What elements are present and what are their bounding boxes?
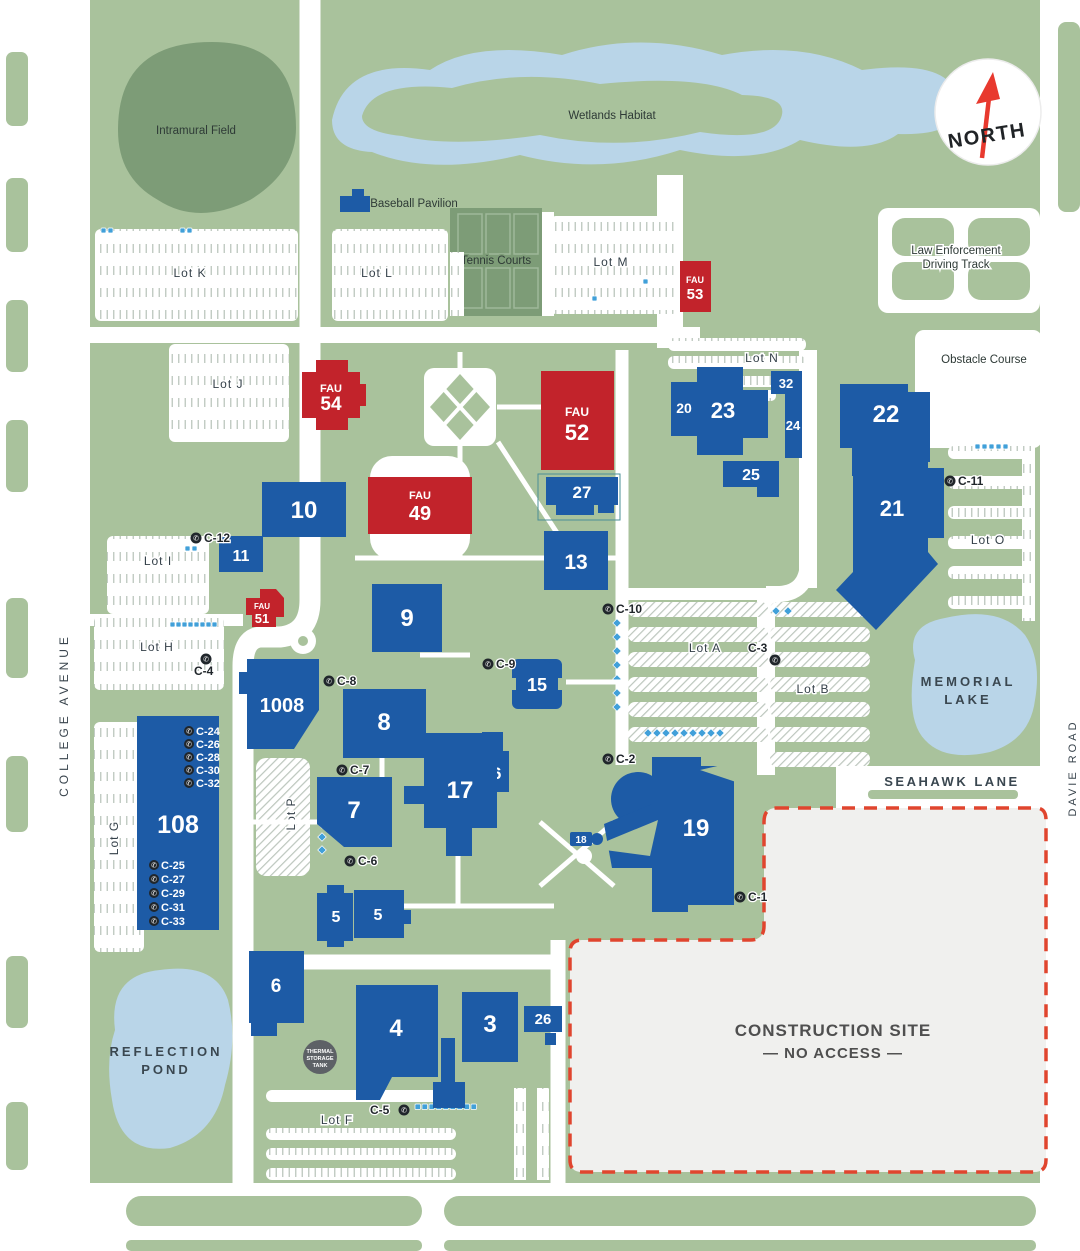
- building-7-number: 7: [347, 797, 360, 824]
- svg-text:✆: ✆: [203, 656, 209, 664]
- building-4-number: 4: [389, 1015, 403, 1042]
- law-enforcement-label-1: Law Enforcement: [911, 245, 1001, 257]
- building-13-number: 13: [564, 551, 587, 574]
- callbox-c11: ✆ C-11: [945, 474, 984, 488]
- wetlands-label: Wetlands Habitat: [568, 110, 656, 122]
- callbox-c8: ✆ C-8: [324, 674, 357, 688]
- lot-h-label: Lot H: [140, 640, 174, 654]
- obstacle-course: Obstacle Course: [915, 330, 1042, 448]
- building-5-west-number: 5: [332, 909, 341, 926]
- svg-text:✆: ✆: [605, 606, 611, 614]
- fau52-prefix: FAU: [565, 405, 589, 419]
- building-24-number: 24: [786, 418, 801, 433]
- central-plaza: [424, 368, 496, 446]
- svg-text:✆: ✆: [193, 535, 199, 543]
- callbox-label: C-27: [161, 874, 185, 886]
- lot-p-label: Lot P: [284, 797, 298, 830]
- building-13: 13: [544, 531, 608, 590]
- callbox-label: C-1: [748, 890, 768, 904]
- lot-j: [169, 344, 289, 442]
- building-1008: 1008: [239, 659, 319, 749]
- callbox-label: C-25: [161, 860, 185, 872]
- building-10-number: 10: [291, 497, 318, 524]
- building-23-number: 23: [711, 398, 735, 423]
- callbox-label: C-29: [161, 888, 185, 900]
- svg-text:✆: ✆: [186, 767, 192, 775]
- accessible-parking-icon: [180, 228, 185, 233]
- construction-label-1: CONSTRUCTION SITE: [735, 1021, 931, 1040]
- building-fau52: FAU 52: [541, 371, 614, 470]
- obstacle-course-label: Obstacle Course: [941, 354, 1027, 366]
- accessible-parking-icon: [592, 296, 597, 301]
- callbox-label: C-10: [616, 602, 642, 616]
- callbox-label: C-33: [161, 916, 185, 928]
- campus-map: Wetlands Habitat Intramural Field Tennis…: [0, 0, 1080, 1251]
- accessible-parking-icon: [101, 228, 106, 233]
- college-avenue-medians: [6, 52, 28, 1170]
- callbox-label: C-3: [748, 641, 768, 655]
- callbox-c12: ✆ C-12: [191, 531, 231, 545]
- accessible-parking-icon: [643, 279, 648, 284]
- building-26: 26: [524, 1006, 562, 1032]
- lot-o-accessible-row: [975, 444, 1008, 449]
- callbox-label: C-12: [204, 531, 230, 545]
- building-9: 9: [372, 584, 442, 652]
- building-25-number: 25: [742, 467, 760, 484]
- callbox-label: C-32: [196, 778, 220, 790]
- building-32: 32: [771, 371, 802, 394]
- lot-a-accessible-row: [644, 729, 724, 737]
- callbox-label: C-8: [337, 674, 357, 688]
- building-15: 15: [508, 659, 566, 709]
- memorial-lake-label-2: LAKE: [944, 692, 991, 707]
- thermal-tank-label-3: TANK: [313, 1063, 328, 1069]
- svg-text:✆: ✆: [186, 728, 192, 736]
- north-compass: NORTH: [935, 59, 1041, 165]
- svg-text:✆: ✆: [151, 890, 157, 898]
- lot-p: [256, 758, 310, 876]
- callbox-c1: ✆ C-1: [735, 890, 768, 904]
- lot-k-label: Lot K: [173, 266, 206, 280]
- svg-text:✆: ✆: [485, 661, 491, 669]
- lot-i-label: Lot I: [144, 554, 172, 568]
- campus-map-canvas: Wetlands Habitat Intramural Field Tennis…: [0, 0, 1080, 1251]
- lot-b-label: Lot B: [796, 682, 829, 696]
- college-avenue-road: [28, 0, 90, 1251]
- south-road-medians: [126, 1196, 1036, 1251]
- building-17-number: 17: [447, 777, 474, 804]
- fau53-number: 53: [687, 286, 704, 303]
- accessible-parking-icon: [185, 546, 190, 551]
- intramural-field-label: Intramural Field: [156, 125, 236, 137]
- building-22-number: 22: [873, 401, 900, 428]
- building-32-number: 32: [779, 376, 793, 391]
- svg-text:✆: ✆: [347, 858, 353, 866]
- svg-text:✆: ✆: [401, 1107, 407, 1115]
- building-3-number: 3: [483, 1011, 496, 1038]
- building-19-number: 19: [683, 815, 710, 842]
- callbox-c10: ✆ C-10: [603, 602, 643, 616]
- svg-text:✆: ✆: [186, 754, 192, 762]
- svg-text:✆: ✆: [151, 918, 157, 926]
- lot-f-label: Lot F: [321, 1113, 353, 1127]
- fau54-number: 54: [320, 394, 342, 415]
- svg-text:✆: ✆: [151, 876, 157, 884]
- callbox-stack-top: ✆ C-24 ✆ C-26 ✆ C-28 ✆ C-30 ✆ C-32: [184, 726, 221, 790]
- building-5-west: 5: [317, 885, 353, 947]
- lot-a-label: Lot A: [689, 641, 721, 655]
- building-20-number: 20: [676, 400, 692, 416]
- callbox-label: C-30: [196, 765, 220, 777]
- svg-text:✆: ✆: [326, 678, 332, 686]
- building-5-east: 5: [354, 890, 411, 938]
- fau51-prefix: FAU: [254, 602, 270, 611]
- callbox-label: C-5: [370, 1103, 390, 1117]
- callbox-label: C-28: [196, 752, 220, 764]
- tennis-courts-label: Tennis Courts: [461, 255, 532, 267]
- building-24: 24: [785, 394, 802, 458]
- callbox-c2: ✆ C-2: [603, 752, 636, 766]
- building-10: 10: [262, 482, 346, 537]
- building-fau53: FAU 53: [680, 261, 711, 312]
- seahawk-lane-label: SEAHAWK LANE: [884, 774, 1019, 789]
- thermal-tank-label-2: STORAGE: [306, 1056, 333, 1062]
- fau49-prefix: FAU: [409, 490, 431, 502]
- svg-text:✆: ✆: [151, 862, 157, 870]
- callbox-label: C-7: [350, 763, 370, 777]
- callbox-label: C-31: [161, 902, 185, 914]
- building-26-number: 26: [535, 1011, 552, 1028]
- college-avenue-label: COLLEGE AVENUE: [57, 633, 71, 797]
- callbox-label: C-26: [196, 739, 220, 751]
- svg-text:✆: ✆: [186, 741, 192, 749]
- thermal-storage-tank: THERMAL STORAGE TANK: [303, 1040, 337, 1074]
- law-enforcement-label-2: Driving Track: [922, 259, 989, 271]
- building-1008-number: 1008: [260, 695, 305, 717]
- building-27-number: 27: [573, 483, 592, 502]
- memorial-lake-label-1: MEMORIAL: [921, 674, 1016, 689]
- accessible-parking-icon: [108, 228, 113, 233]
- building-108-number: 108: [157, 811, 199, 839]
- callbox-label: C-24: [196, 726, 221, 738]
- building-5-east-number: 5: [374, 907, 383, 924]
- svg-text:✆: ✆: [947, 478, 953, 486]
- callbox-label: C-11: [958, 474, 984, 488]
- construction-label-2: — NO ACCESS —: [763, 1045, 903, 1062]
- fau52-number: 52: [565, 420, 589, 445]
- building-20: 20: [671, 382, 698, 436]
- callbox-label: C-4: [194, 664, 214, 678]
- lot-g-label: Lot G: [107, 821, 121, 855]
- callbox-c7: ✆ C-7: [337, 763, 370, 777]
- lot-n: [668, 338, 806, 351]
- building-8: 8: [343, 689, 426, 758]
- lot-m-label: Lot M: [593, 255, 628, 269]
- callbox-label: C-6: [358, 854, 378, 868]
- fau53-prefix: FAU: [686, 275, 704, 285]
- baseball-pavilion-label: Baseball Pavilion: [370, 198, 458, 210]
- building-15-number: 15: [527, 675, 547, 695]
- davie-road-label: DAVIE ROAD: [1067, 719, 1079, 816]
- reflection-pond-label-1: REFLECTION: [109, 1044, 222, 1059]
- memorial-lake: MEMORIAL LAKE: [912, 614, 1037, 755]
- building-fau49: FAU 49: [368, 456, 472, 560]
- accessible-parking-icon: [192, 546, 197, 551]
- building-21-number: 21: [880, 496, 904, 521]
- svg-text:✆: ✆: [772, 657, 778, 665]
- lot-n-label: Lot N: [745, 351, 779, 365]
- lot-l-label: Lot L: [361, 266, 393, 280]
- callbox-label: C-9: [496, 657, 516, 671]
- law-enforcement-driving-track: Law Enforcement Driving Track: [878, 208, 1040, 313]
- building-18-number: 18: [575, 835, 587, 846]
- svg-text:✆: ✆: [605, 756, 611, 764]
- svg-text:✆: ✆: [151, 904, 157, 912]
- svg-text:✆: ✆: [186, 780, 192, 788]
- lot-o-label: Lot O: [971, 533, 1005, 547]
- building-9-number: 9: [400, 605, 413, 632]
- roundabout: [290, 628, 316, 654]
- fau49-number: 49: [409, 503, 431, 525]
- callbox-label: C-2: [616, 752, 636, 766]
- fau51-number: 51: [255, 611, 269, 626]
- building-11-number: 11: [233, 548, 250, 565]
- lot-j-label: Lot J: [212, 377, 243, 391]
- reflection-pond-label-2: POND: [141, 1062, 191, 1077]
- building-108: 108 ✆ C-24 ✆ C-26 ✆ C-28 ✆ C-30 ✆ C-32 ✆…: [137, 716, 221, 930]
- callbox-c6: ✆ C-6: [345, 854, 378, 868]
- svg-text:✆: ✆: [737, 894, 743, 902]
- davie-road-median: [1058, 22, 1080, 212]
- svg-text:✆: ✆: [339, 767, 345, 775]
- lot-l-annex: [450, 252, 464, 316]
- callbox-c9: ✆ C-9: [483, 657, 516, 671]
- building-6-number: 6: [271, 976, 282, 997]
- building-8-number: 8: [377, 709, 390, 736]
- thermal-tank-label-1: THERMAL: [307, 1049, 335, 1055]
- accessible-parking-icon: [187, 228, 192, 233]
